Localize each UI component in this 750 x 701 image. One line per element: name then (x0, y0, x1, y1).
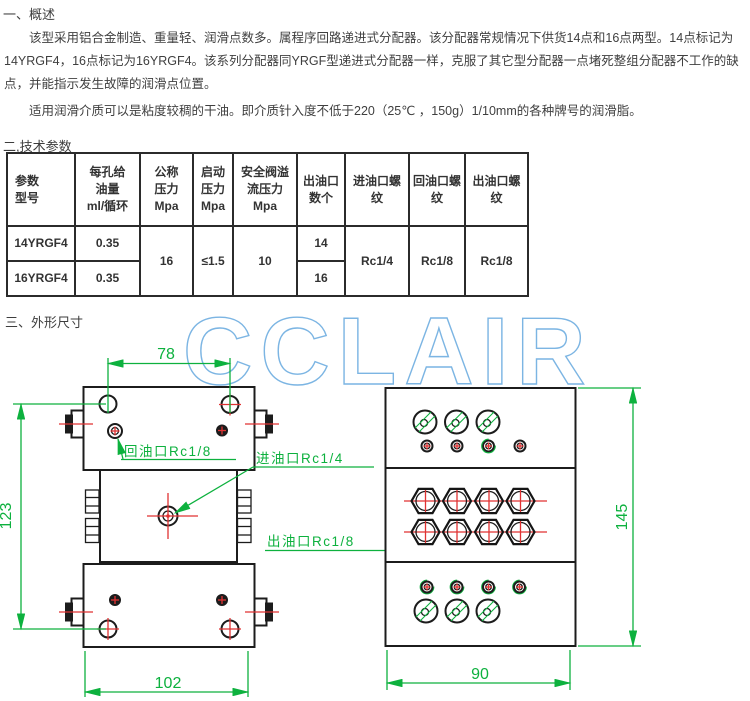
overview-paragraph-1: 该型采用铝合金制造、重量轻、润滑点数多。属程序回路递进式分配器。该分配器常规情况… (4, 27, 748, 96)
td-oil-row2: 0.35 (75, 261, 140, 296)
th-return-thread: 回油口螺 纹 (409, 153, 465, 226)
th-inlet-thread: 进油口螺 纹 (345, 153, 409, 226)
td-outlets-row1: 14 (297, 226, 345, 261)
side-view-drawing (386, 388, 576, 646)
td-return-thread: Rc1/8 (409, 226, 465, 296)
overview-paragraph-2: 适用润滑介质可以是粘度较稠的干油。即介质针入度不低于220（25℃ ，150g）… (4, 100, 748, 123)
dim-label-102: 102 (155, 675, 182, 692)
dimension-right-width: 90 (387, 650, 570, 690)
overview-heading: 一、概述 (3, 4, 55, 23)
th-relief-pressure: 安全阀溢 流压力 Mpa (233, 153, 297, 226)
dim-label-90: 90 (471, 666, 489, 683)
front-view-drawing (59, 387, 279, 647)
outline-drawing: CCLAIR (0, 300, 750, 701)
dimension-left-width: 102 (85, 651, 248, 697)
td-outlets-row2: 16 (297, 261, 345, 296)
td-model-row2: 16YRGF4 (7, 261, 75, 296)
th-outlet-thread: 出油口螺 纹 (465, 153, 528, 226)
td-model-row1: 14YRGF4 (7, 226, 75, 261)
tech-params-table: 参数 型号 每孔给 油量 ml/循环 公称 压力 Mpa 启动 压力 Mpa 安… (6, 152, 529, 297)
dim-label-123: 123 (0, 503, 15, 530)
th-outlet-count: 出油口 数个 (297, 153, 345, 226)
td-start-pressure: ≤1.5 (193, 226, 233, 296)
th-start-pressure: 启动 压力 Mpa (193, 153, 233, 226)
dim-label-78: 78 (157, 346, 175, 363)
td-relief-pressure: 10 (233, 226, 297, 296)
td-inlet-thread: Rc1/4 (345, 226, 409, 296)
th-nominal-pressure: 公称 压力 Mpa (140, 153, 193, 226)
dimension-right-height: 145 (578, 388, 641, 646)
td-oil-row1: 0.35 (75, 226, 140, 261)
return-port-label: 回油口Rc1/8 (124, 444, 212, 459)
th-param-model: 参数 型号 (7, 153, 75, 226)
dim-label-145: 145 (614, 504, 631, 531)
outlet-port-label: 出油口Rc1/8 (267, 534, 355, 549)
inlet-port-label: 进油口Rc1/4 (256, 451, 344, 466)
td-outlet-thread: Rc1/8 (465, 226, 528, 296)
td-nominal-pressure: 16 (140, 226, 193, 296)
th-oil-per-hole: 每孔给 油量 ml/循环 (75, 153, 140, 226)
